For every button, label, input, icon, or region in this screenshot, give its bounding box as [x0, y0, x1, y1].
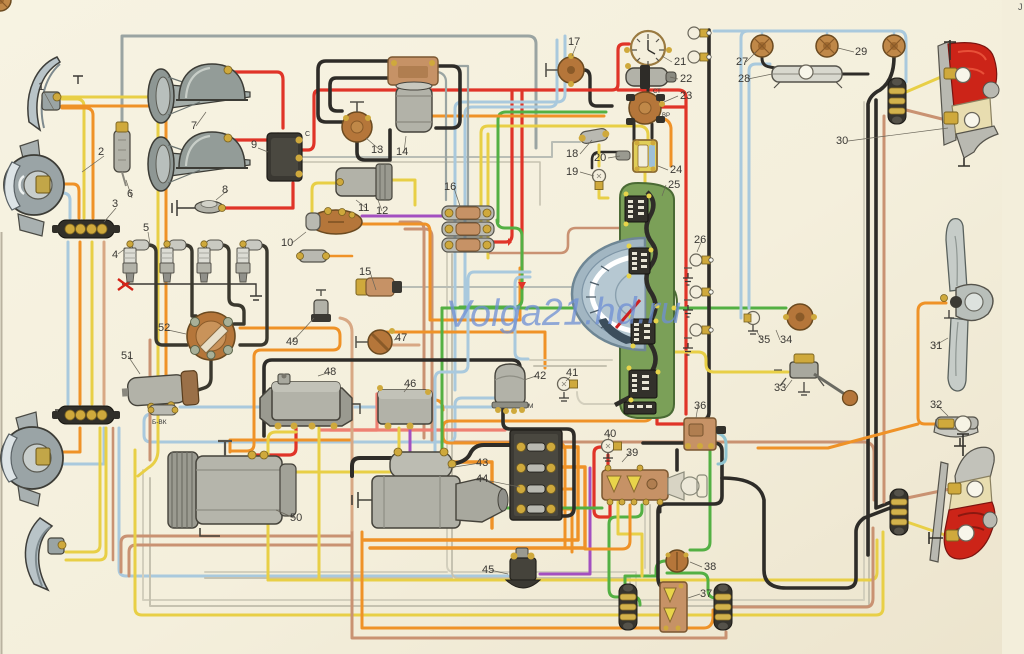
- svg-text:7: 7: [191, 120, 197, 132]
- svg-text:32: 32: [930, 399, 942, 411]
- svg-text:42: 42: [534, 370, 546, 382]
- svg-text:2: 2: [98, 146, 104, 158]
- svg-text:26: 26: [694, 234, 706, 246]
- svg-text:44: 44: [476, 473, 488, 485]
- svg-text:35: 35: [758, 334, 770, 346]
- svg-text:46: 46: [404, 378, 416, 390]
- svg-text:10: 10: [281, 237, 293, 249]
- svg-text:Volga21.hd.ru: Volga21.hd.ru: [446, 290, 682, 336]
- svg-text:ВР: ВР: [662, 113, 670, 119]
- svg-text:5: 5: [143, 222, 149, 234]
- svg-text:48: 48: [324, 366, 336, 378]
- svg-text:51: 51: [121, 350, 133, 362]
- svg-text:43: 43: [476, 457, 488, 469]
- svg-text:28: 28: [738, 73, 750, 85]
- svg-text:22: 22: [680, 73, 692, 85]
- svg-text:18: 18: [566, 148, 578, 160]
- svg-text:40: 40: [604, 428, 616, 440]
- svg-text:29: 29: [855, 46, 867, 58]
- svg-text:50: 50: [290, 512, 302, 524]
- svg-text:27: 27: [736, 56, 748, 68]
- svg-text:31: 31: [930, 340, 942, 352]
- svg-text:3: 3: [112, 198, 118, 210]
- svg-text:20: 20: [594, 152, 606, 164]
- svg-text:8: 8: [222, 184, 228, 196]
- svg-text:16: 16: [444, 181, 456, 193]
- svg-text:38: 38: [704, 561, 716, 573]
- svg-text:12: 12: [376, 205, 388, 217]
- svg-text:21: 21: [674, 56, 686, 68]
- svg-text:13: 13: [371, 144, 383, 156]
- svg-text:49: 49: [286, 336, 298, 348]
- svg-text:17: 17: [568, 36, 580, 48]
- svg-text:39: 39: [626, 447, 638, 459]
- svg-text:52: 52: [158, 322, 170, 334]
- svg-text:Б-ВК: Б-ВК: [152, 419, 167, 426]
- svg-text:37: 37: [700, 588, 712, 600]
- svg-text:23: 23: [680, 90, 692, 102]
- svg-text:25: 25: [668, 179, 680, 191]
- svg-text:34: 34: [780, 334, 792, 346]
- svg-text:М: М: [528, 403, 533, 410]
- svg-text:24: 24: [670, 164, 682, 176]
- svg-text:47: 47: [395, 332, 407, 344]
- svg-text:36: 36: [694, 400, 706, 412]
- svg-text:4: 4: [112, 249, 118, 261]
- svg-text:C: C: [305, 131, 310, 138]
- svg-text:41: 41: [566, 367, 578, 379]
- svg-text:11: 11: [358, 202, 369, 214]
- svg-text:6: 6: [127, 188, 133, 200]
- svg-text:15: 15: [359, 266, 371, 278]
- svg-text:33: 33: [774, 382, 786, 394]
- svg-text:14: 14: [396, 146, 408, 158]
- svg-text:30: 30: [836, 135, 848, 147]
- svg-text:19: 19: [566, 166, 578, 178]
- svg-text:СТ: СТ: [653, 89, 661, 95]
- svg-text:J: J: [1018, 2, 1023, 12]
- svg-text:1: 1: [38, 81, 44, 93]
- svg-text:9: 9: [251, 139, 257, 151]
- svg-text:45: 45: [482, 564, 494, 576]
